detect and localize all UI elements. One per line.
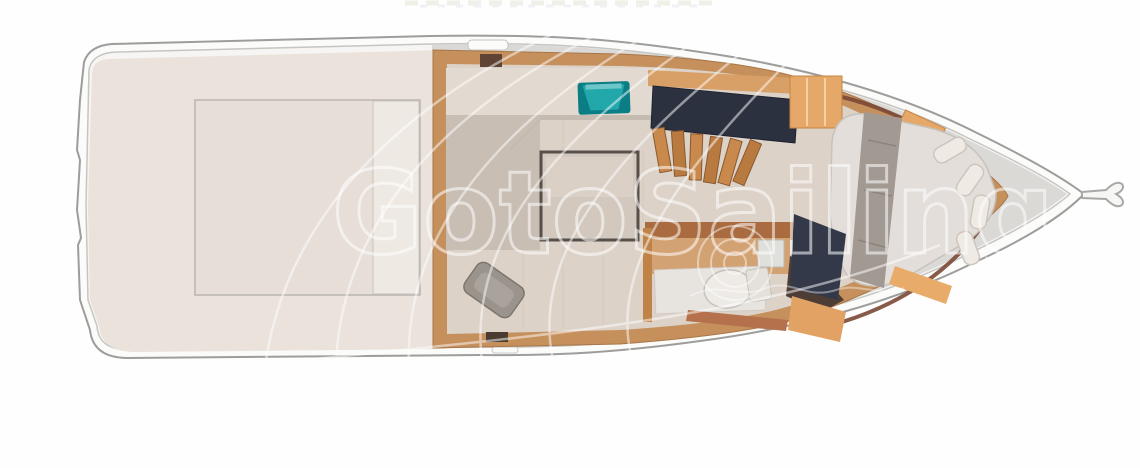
cropped-text-remnant [405, 3, 712, 6]
companionway-door [480, 54, 502, 67]
bow-shelf-left [790, 76, 842, 128]
floorplan-image: GotoSailing [0, 0, 1140, 468]
boat-plan-svg: GotoSailing [0, 0, 1140, 468]
anchor-fitting-icon [1082, 183, 1123, 206]
galley-sink [577, 81, 630, 115]
deck-hatch-bottom [492, 347, 518, 353]
deck-hatch-top [468, 40, 508, 50]
watermark-text: GotoSailing [332, 147, 1054, 281]
